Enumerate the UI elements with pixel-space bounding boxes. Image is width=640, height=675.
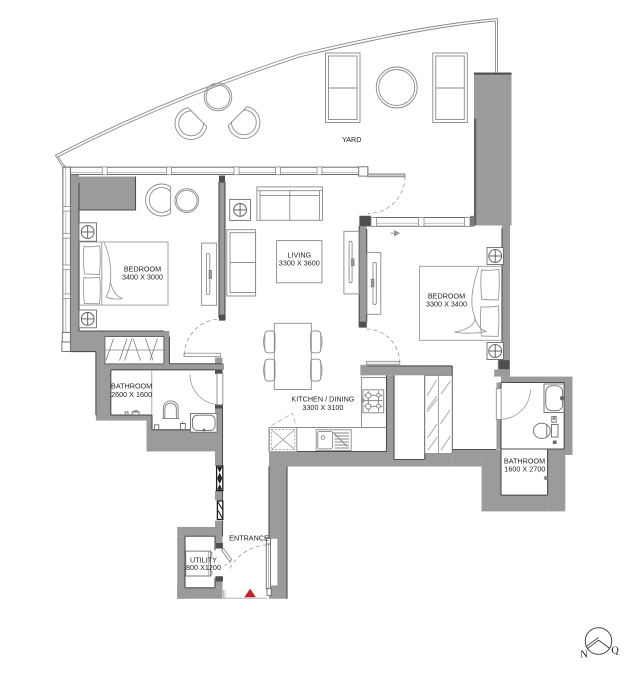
svg-text:ENTRANCE: ENTRANCE bbox=[229, 533, 269, 542]
svg-text:3300 X 3600: 3300 X 3600 bbox=[279, 258, 320, 267]
svg-text:1600 X 2700: 1600 X 2700 bbox=[504, 465, 545, 474]
svg-text:YARD: YARD bbox=[342, 135, 362, 144]
svg-text:3400 X 3000: 3400 X 3000 bbox=[122, 273, 163, 282]
svg-text:N: N bbox=[580, 650, 588, 661]
svg-text:3300 X 3100: 3300 X 3100 bbox=[302, 403, 343, 412]
svg-text:3300 X 3400: 3300 X 3400 bbox=[426, 300, 467, 309]
svg-text:800 X1200: 800 X1200 bbox=[186, 563, 221, 572]
svg-text:2600 X 1600: 2600 X 1600 bbox=[111, 390, 152, 399]
svg-text:Q: Q bbox=[611, 646, 619, 657]
